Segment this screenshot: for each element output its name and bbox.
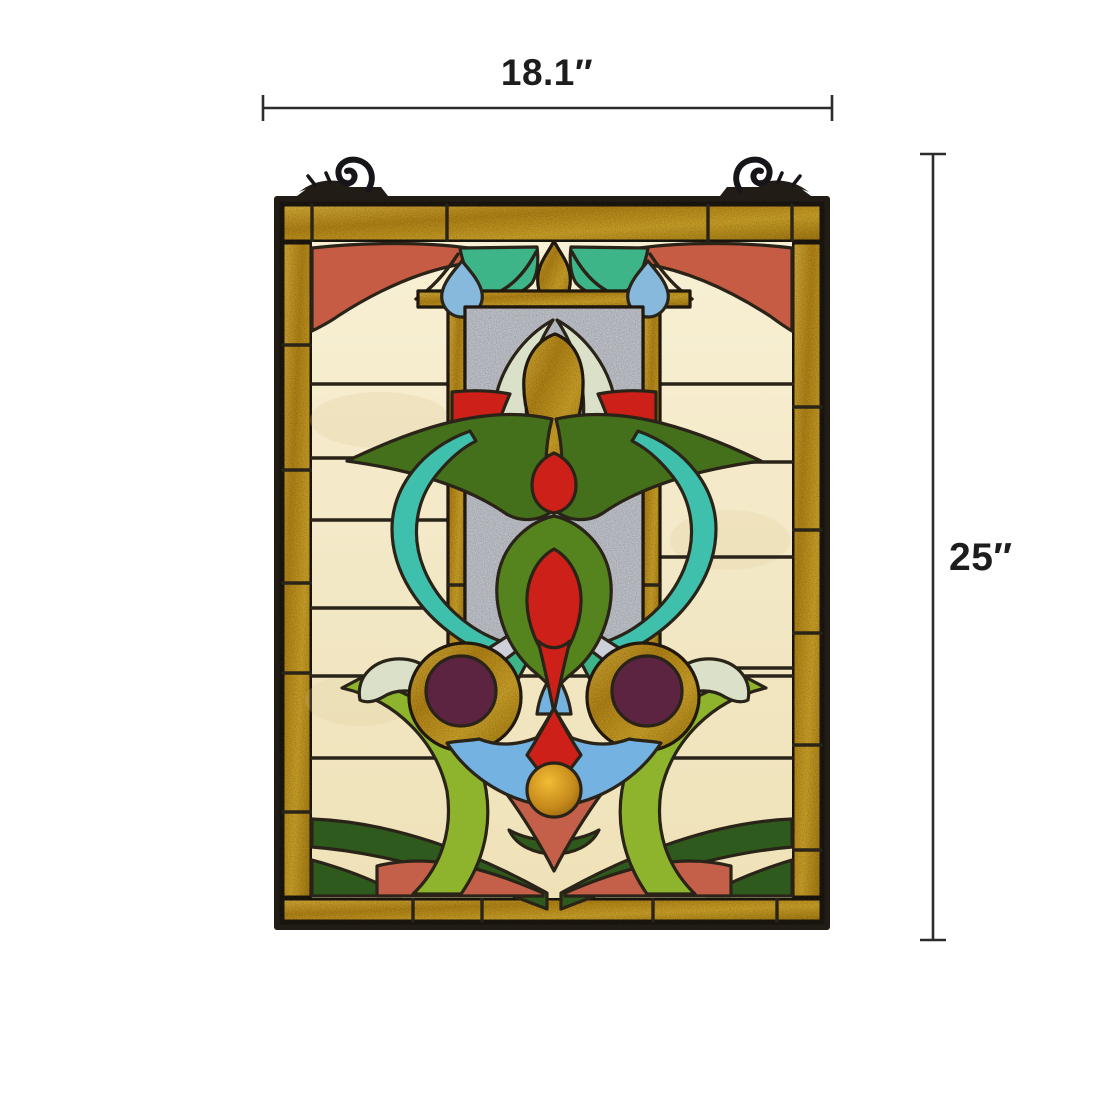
width-dimension-label: 18.1″ [447, 52, 647, 94]
right-hanging-hook [720, 160, 811, 196]
height-dimension-label: 25″ [949, 536, 1013, 580]
amber-cabochon [527, 763, 581, 817]
gold-border-left [282, 242, 312, 898]
height-dimension-line [920, 154, 946, 940]
gold-border-top [282, 204, 822, 242]
width-dimension-line [263, 95, 832, 121]
product-image: 18.1″ 25″ [0, 0, 1100, 1100]
gold-border-right [792, 242, 822, 898]
gold-border-bottom [282, 898, 822, 922]
stained-glass-panel [274, 196, 830, 930]
left-hanging-hook [297, 160, 388, 196]
stained-glass-product-svg [0, 0, 1100, 1100]
